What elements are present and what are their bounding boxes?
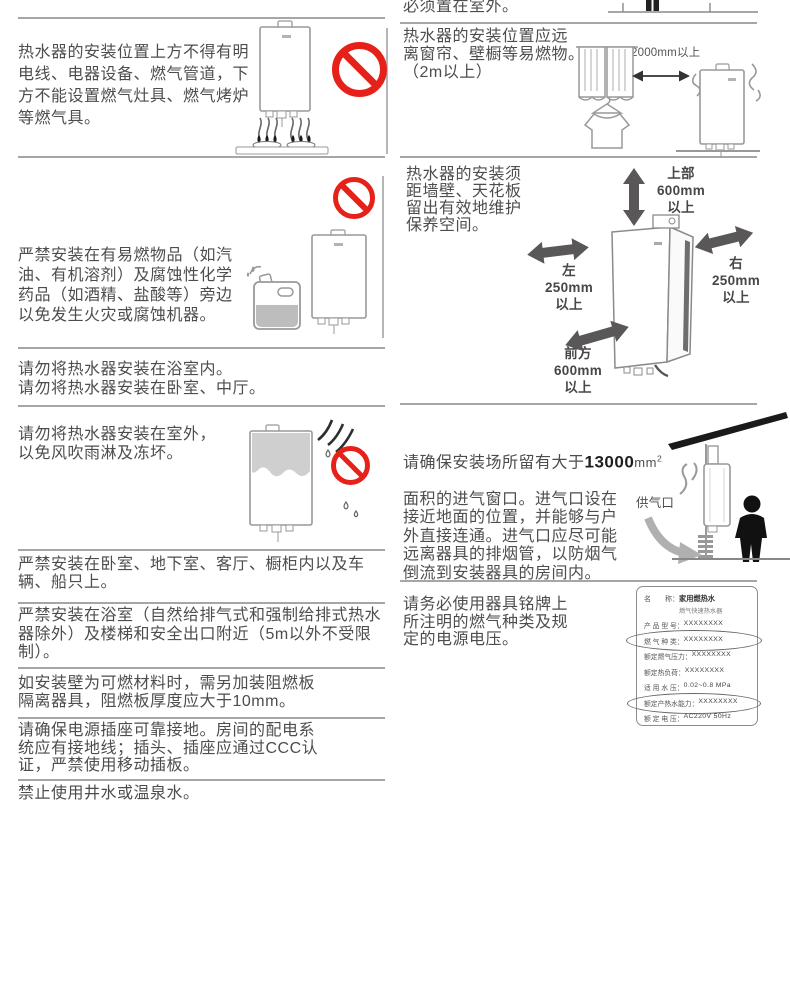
instruction-no-outdoor: 请勿将热水器安装在室外， 以免风吹雨淋及冻坏。 [18,426,238,463]
nameplate-name-row: 名 称： 家用燃热水 燃气快速热水器 [644,594,752,615]
separator-line [18,602,385,604]
voltage-highlight-ellipse [627,693,761,714]
curtain-and-shirt-illustration [576,40,638,152]
prohibition-icon [331,446,370,485]
flammable-liquid-heater-illustration [248,230,374,336]
air-inlet-area-value: 13000 [585,452,635,471]
prohibition-icon [333,177,375,219]
wall-line [386,28,388,154]
instruction-grounded-socket: 请确保电源插座可靠接地。房间的配电系 统应有接地线；插头、插座应通过CCC认 证… [18,722,358,775]
separator-line [18,549,385,551]
hot-heater-illustration [688,58,762,158]
floor-line [676,150,760,152]
separator-line [18,779,385,781]
instruction-maintenance-space: 热水器的安装须 距墙壁、天花板 留出有效地维护 保养空间。 [406,166,536,234]
heater-above-stove-illustration [230,18,334,154]
clearance-heater-illustration [520,158,780,408]
distance-arrow-icon [630,68,692,84]
instruction-flame-retardant-board: 如安装壁为可燃材料时，需另加装阻燃板 隔离器具，阻燃板厚度应大于10mm。 [18,675,358,710]
air-inlet-text-lead: 请确保安装场所留有大于 [403,454,585,471]
nameplate-name-value2: 燃气快速热水器 [679,606,722,615]
instruction-use-nameplate-ratings: 请务必使用器具铭牌上 所注明的燃气种类及规 定的电源电压。 [403,596,588,649]
separator-line [18,405,385,407]
instruction-no-flammables: 严禁安装在有易燃物品（如汽 油、有机溶剂）及腐蚀性化学 药品（如酒精、盐酸等）旁… [18,246,260,326]
separator-line [18,667,385,669]
instruction-no-basement-vehicle: 严禁安装在卧室、地下室、客厅、橱柜内以及车 辆、船只上。 [18,556,388,592]
air-inlet-scene-illustration [628,408,790,566]
separator-line [18,717,385,719]
instruction-away-from-curtains: 热水器的安装位置应远 离窗帘、壁橱等易燃物。 （2m以上） [403,28,588,82]
nameplate-row-rated-voltage: 额 定 电 压：AC220V 50Hz [644,713,752,723]
cutoff-illustration-fragment [600,0,770,16]
gas-type-highlight-ellipse [626,630,762,651]
manual-page: 热水器的安装位置上方不得有明 电线、电器设备、燃气管道，下 方不能设置燃气灶具、… [0,0,790,983]
instruction-no-flames-above-below: 热水器的安装位置上方不得有明 电线、电器设备、燃气管道，下 方不能设置燃气灶具、… [18,42,260,130]
nameplate-row-heat-load: 额定热负荷：XXXXXXXX [644,667,752,677]
instruction-no-bathroom-bedroom: 请勿将热水器安装在浴室内。 请勿将热水器安装在卧室、中厅。 [18,361,318,398]
prohibition-icon [332,42,387,97]
wall-line [382,176,384,338]
instruction-no-bathroom-stairs: 严禁安装在浴室（自然给排气式和强制给排式热水 器除外）及楼梯和安全出口附近（5m… [18,607,390,663]
nameplate-row-water-pressure: 适 用 水 压：0.02~0.8 MPa [644,682,752,692]
nameplate-row-gas-pressure: 额定燃气压力：XXXXXXXX [644,651,752,661]
nameplate-name-value: 家用燃热水 [679,594,722,604]
separator-line [18,156,385,158]
separator-line [400,22,757,24]
separator-line [18,347,385,349]
nameplate-name-label: 名 称： [644,594,679,615]
instruction-no-well-water: 禁止使用井水或温泉水。 [18,784,318,804]
nameplate-row-model: 产 品 型 号：XXXXXXXX [644,620,752,630]
